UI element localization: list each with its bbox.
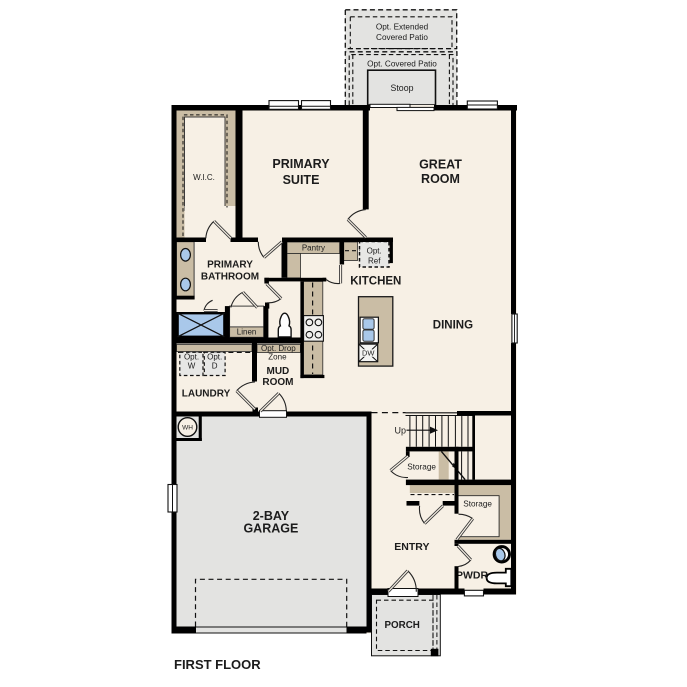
svg-text:ROOM: ROOM — [421, 172, 460, 186]
svg-text:W.I.C.: W.I.C. — [193, 173, 215, 182]
svg-text:LAUNDRY: LAUNDRY — [182, 388, 231, 399]
svg-text:GREAT: GREAT — [419, 157, 462, 171]
svg-text:MUD: MUD — [267, 366, 290, 377]
svg-text:BATHROOM: BATHROOM — [201, 271, 259, 282]
svg-text:ROOM: ROOM — [262, 377, 293, 388]
svg-text:W: W — [188, 362, 196, 371]
svg-text:Opt. Covered Patio: Opt. Covered Patio — [367, 59, 437, 68]
svg-text:SUITE: SUITE — [283, 173, 320, 187]
svg-text:Opt. Extended: Opt. Extended — [376, 22, 429, 31]
svg-text:GARAGE: GARAGE — [243, 522, 298, 536]
svg-text:DW: DW — [362, 349, 375, 358]
svg-text:ENTRY: ENTRY — [394, 541, 429, 553]
svg-text:Ref: Ref — [368, 257, 381, 266]
svg-text:Opt.: Opt. — [207, 352, 222, 361]
svg-text:PRIMARY: PRIMARY — [272, 157, 330, 171]
svg-text:DINING: DINING — [433, 320, 473, 332]
svg-text:Pantry: Pantry — [302, 244, 325, 253]
svg-text:Linen: Linen — [237, 328, 257, 337]
svg-text:Stoop: Stoop — [391, 83, 414, 93]
svg-text:WH: WH — [182, 424, 193, 431]
svg-text:Covered Patio: Covered Patio — [376, 33, 428, 42]
svg-text:FIRST FLOOR: FIRST FLOOR — [174, 657, 261, 672]
svg-text:Opt.: Opt. — [367, 247, 382, 256]
svg-text:PWDR: PWDR — [456, 570, 488, 582]
svg-text:PORCH: PORCH — [385, 620, 420, 631]
svg-text:D: D — [212, 362, 218, 371]
svg-text:PRIMARY: PRIMARY — [207, 260, 253, 271]
svg-text:Opt.: Opt. — [184, 352, 199, 361]
svg-text:Up: Up — [395, 425, 407, 435]
svg-text:KITCHEN: KITCHEN — [350, 275, 401, 287]
svg-text:Zone: Zone — [268, 352, 287, 361]
svg-text:Storage: Storage — [463, 499, 492, 508]
svg-text:Storage: Storage — [407, 462, 436, 471]
